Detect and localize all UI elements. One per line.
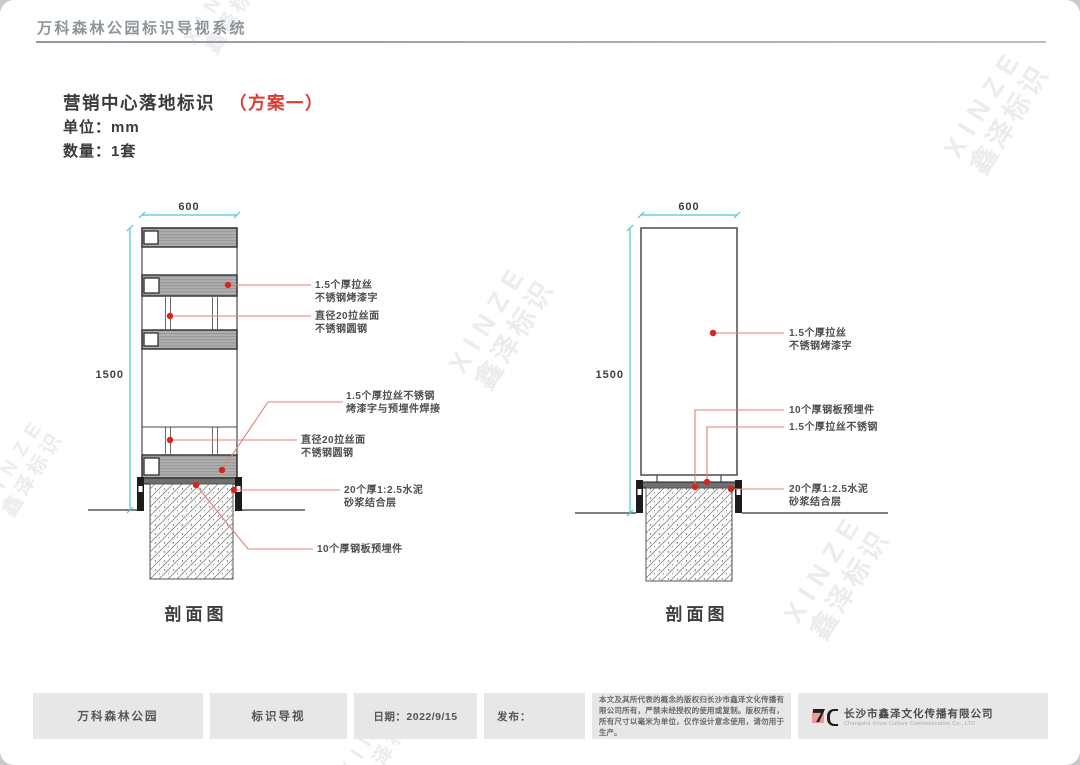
footer-project-label: 万科森林公园: [78, 708, 159, 724]
footer-project-cell: 万科森林公园: [33, 693, 203, 739]
company-name-cn: 长沙市鑫泽文化传播有限公司: [844, 706, 994, 721]
callout-label: 20个厚1:2.5水泥: [344, 483, 423, 496]
concrete-foundation: [646, 488, 732, 581]
left-callout-dots: [167, 282, 237, 493]
band-notches: [144, 231, 159, 475]
company-name-en: Changsha Xinze Culture Communication Co.…: [844, 721, 994, 727]
base-plate: [641, 482, 737, 488]
document-title: 万科森林公园标识导视系统: [37, 17, 247, 38]
callout-label: 1.5个厚拉丝不锈钢: [346, 389, 435, 402]
footer-category-cell: 标识导视: [210, 693, 347, 739]
company-name-block: 长沙市鑫泽文化传播有限公司 Changsha Xinze Culture Com…: [844, 706, 994, 727]
anchor-brackets: [137, 477, 242, 511]
footer-category-label: 标识导视: [252, 708, 306, 724]
title-block: 营销中心落地标识（方案一）: [63, 90, 324, 115]
section-title: 营销中心落地标识: [63, 93, 215, 113]
left-dimension-lines: [127, 212, 240, 513]
callout-label: 10个厚钢板预埋件: [317, 542, 403, 555]
callout-label: 直径20拉丝面: [315, 309, 380, 322]
watermark: XINZE鑫泽标识: [443, 257, 562, 395]
watermark: XINZE鑫泽标识: [0, 412, 71, 524]
footer-release-cell: 发布：: [484, 693, 585, 739]
scheme-label: （方案一）: [229, 93, 324, 113]
right-callout-labels: 1.5个厚拉丝 不锈钢烤漆字 10个厚钢板预埋件 1.5个厚拉丝不锈钢 20个厚…: [788, 326, 878, 508]
header-rule: [36, 41, 1046, 43]
right-section-drawing: [575, 228, 888, 581]
footer-date-cell: 日期：2022/9/15: [354, 693, 477, 739]
right-dimension-lines: [627, 212, 740, 516]
right-height-dim: 1500: [596, 369, 624, 381]
anchor-brackets: [636, 480, 742, 513]
watermark: XINZE鑫泽标识: [938, 42, 1057, 180]
callout-label: 不锈钢烤漆字: [789, 339, 852, 352]
footer-disclaimer-cell: 本文及其所代表的概念的版权归长沙市鑫泽文化传播有限公司所有，严禁未经授权的使用或…: [592, 693, 791, 739]
callout-label: 1.5个厚拉丝不锈钢: [789, 420, 878, 433]
callout-label: 10个厚钢板预埋件: [789, 403, 875, 416]
callout-label: 砂浆结合层: [788, 495, 842, 508]
left-section-drawing: [88, 228, 305, 579]
callout-label: 直径20拉丝面: [301, 433, 366, 446]
callout-label: 不锈钢烤漆字: [315, 291, 378, 304]
disclaimer-text: 本文及其所代表的概念的版权归长沙市鑫泽文化传播有限公司所有，严禁未经授权的使用或…: [599, 694, 784, 739]
left-callout-leaders: [170, 285, 343, 549]
callout-label: 1.5个厚拉丝: [789, 326, 846, 339]
xinze-logo-icon: [812, 706, 838, 726]
right-callout-dots: [692, 330, 734, 492]
drawing-sheet: XINZE鑫泽标识 XINZE鑫泽标识 XINZE鑫泽标识 XINZE鑫泽标识 …: [0, 0, 1080, 765]
right-caption: 剖面图: [666, 604, 729, 624]
left-width-dim: 600: [178, 201, 199, 213]
callout-label: 1.5个厚拉丝: [315, 278, 372, 291]
left-callout-labels: 1.5个厚拉丝 不锈钢烤漆字 直径20拉丝面 不锈钢圆钢 1.5个厚拉丝不锈钢 …: [301, 278, 441, 555]
footer-release-label: 发布：: [497, 709, 532, 724]
round-steel-tubes: [166, 296, 218, 455]
callout-label: 砂浆结合层: [343, 496, 397, 509]
unit-label: 单位：mm: [63, 116, 140, 137]
left-height-dim: 1500: [96, 369, 124, 381]
footer-company-cell: 长沙市鑫泽文化传播有限公司 Changsha Xinze Culture Com…: [798, 693, 1048, 739]
callout-label: 不锈钢圆钢: [315, 322, 368, 335]
base-plate: [140, 478, 239, 484]
steel-bands: [142, 228, 237, 478]
watermark: XINZE鑫泽标识: [778, 507, 897, 645]
right-callout-leaders: [695, 333, 784, 489]
callout-label: 烤漆字与预埋件焊接: [346, 402, 441, 415]
right-width-dim: 600: [678, 201, 699, 213]
callout-label: 不锈钢圆钢: [301, 446, 354, 459]
quantity-label: 数量：1套: [63, 140, 136, 161]
concrete-foundation: [150, 484, 233, 579]
callout-label: 20个厚1:2.5水泥: [789, 482, 868, 495]
footer-date-label: 日期：2022/9/15: [373, 709, 457, 724]
left-caption: 剖面图: [165, 604, 228, 624]
